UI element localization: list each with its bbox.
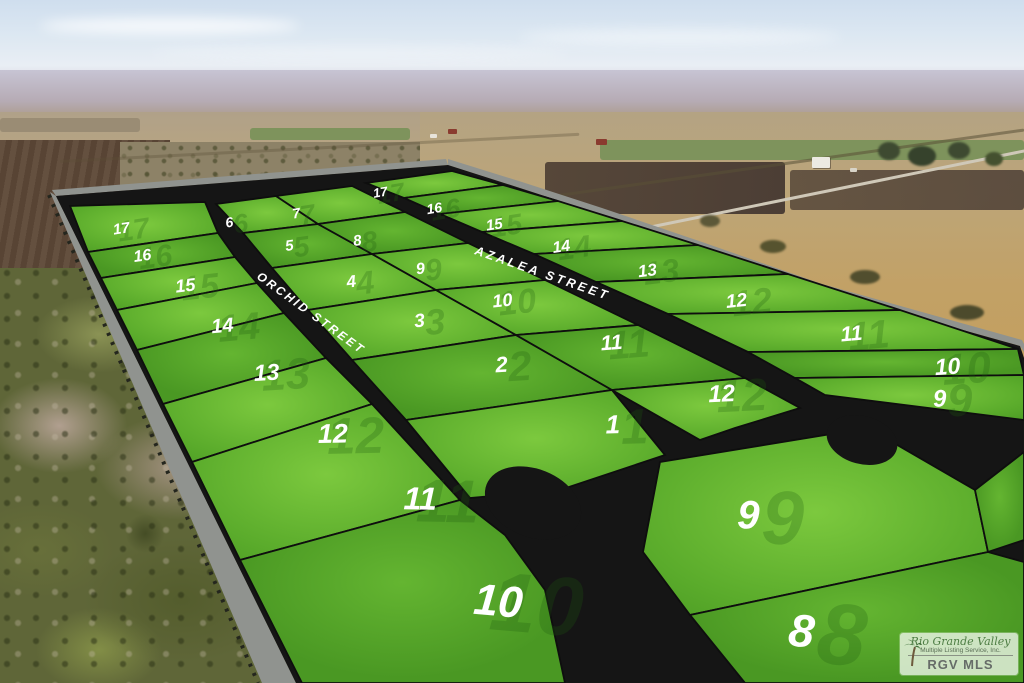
watermark-subtitle: Multiple Listing Service, Inc.: [908, 647, 1013, 656]
lot-number-inner_east-3: 10: [491, 290, 513, 312]
lot-number-west_outer-2: 15: [174, 274, 197, 296]
mls-watermark: Rio Grande Valley Multiple Listing Servi…: [900, 633, 1018, 675]
lot-number-east_outer-8: 9: [932, 385, 947, 413]
lot-number-west_outer-0: 17: [112, 219, 132, 238]
lot-number-inner_east-5: 12: [708, 380, 737, 408]
palm-tree-icon: [902, 637, 922, 667]
lot-number-east_outer-3: 14: [551, 238, 571, 257]
lot-number-east_outer-1: 16: [425, 199, 443, 217]
lot-number-west_outer-7: 10: [472, 575, 525, 628]
lot-number-east_outer-5: 12: [725, 290, 749, 313]
subdivision-plat: 1717161615151414131312121111101066554433…: [0, 0, 1024, 683]
lot-number-inner_west-5: 1: [605, 409, 620, 439]
lot-number-ghost-inner_west-5: 1: [620, 399, 649, 455]
watermark-title: Rio Grande Valley: [908, 636, 1013, 647]
lot-number-south-0: 9: [737, 493, 761, 538]
lot-number-ghost-east_outer-8: 9: [946, 374, 974, 426]
lot-number-west_outer-1: 16: [132, 247, 152, 266]
lot-number-east_outer-4: 13: [637, 260, 659, 281]
lot-number-west_outer-6: 11: [403, 480, 437, 517]
lot-number-ghost-south-0: 9: [760, 475, 805, 561]
lot-number-inner_east-4: 11: [600, 331, 624, 356]
lot-number-ghost-south-1: 8: [813, 583, 872, 683]
lot-number-west_outer-5: 12: [317, 418, 348, 449]
aerial-plat-photo: 1717161615151414131312121111101066554433…: [0, 0, 1024, 683]
lot-number-east_outer-2: 15: [485, 215, 505, 234]
lot-number-west_outer-4: 13: [253, 359, 280, 386]
lot-number-ghost-inner_west-4: 2: [506, 342, 533, 390]
watermark-rgvmls: RGV MLS: [908, 657, 1013, 672]
lot-number-inner_west-4: 2: [494, 352, 510, 378]
lot-number-ghost-inner_west-3: 3: [423, 300, 447, 343]
lot-number-east_outer-6: 11: [840, 322, 864, 347]
lot-number-west_outer-3: 14: [210, 314, 234, 338]
